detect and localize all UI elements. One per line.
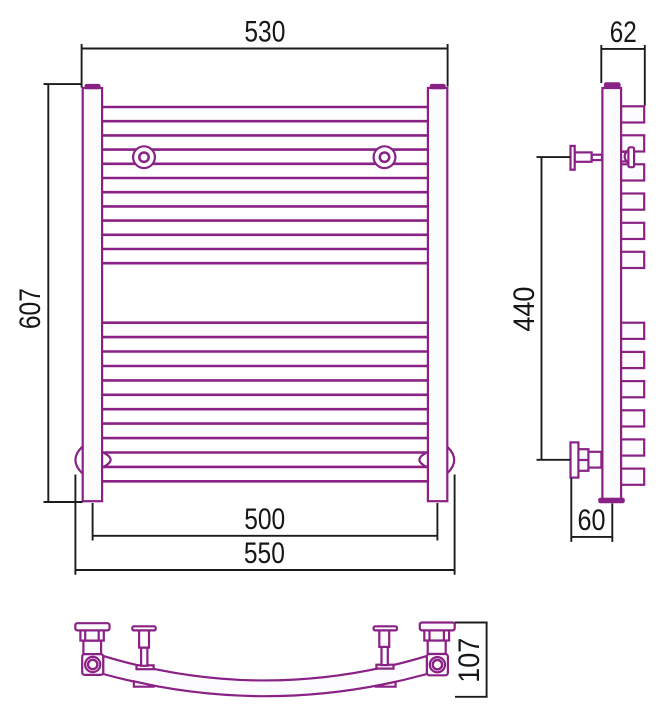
svg-text:530: 530 — [244, 16, 285, 49]
svg-text:60: 60 — [578, 504, 606, 537]
svg-text:607: 607 — [14, 288, 47, 329]
svg-text:62: 62 — [610, 16, 637, 49]
svg-text:107: 107 — [453, 638, 486, 683]
svg-text:550: 550 — [244, 537, 285, 570]
svg-text:500: 500 — [244, 503, 285, 536]
svg-text:440: 440 — [508, 287, 541, 332]
